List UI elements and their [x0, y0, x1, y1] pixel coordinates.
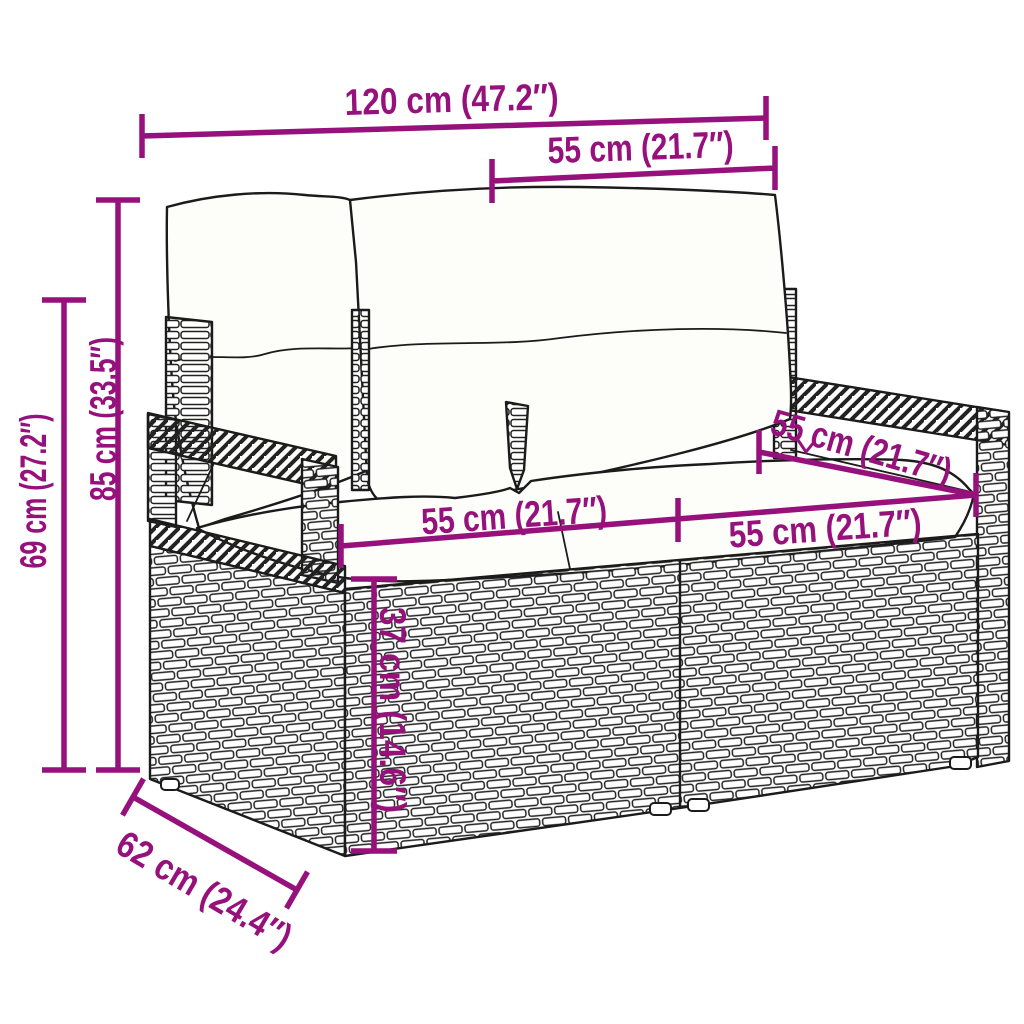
dimension-total-height: 85 cm (33.5″) — [83, 200, 140, 770]
right-armrest-post — [977, 407, 1009, 767]
dimension-total-width-label: 120 cm (47.2″) — [344, 76, 559, 123]
dimension-total-depth-label: 62 cm (24.4″) — [110, 823, 300, 958]
sofa-foot — [950, 757, 971, 769]
dimension-armrest-height: 69 cm (27.2″) — [13, 300, 86, 770]
sofa-foot — [688, 799, 709, 811]
dimension-diagram: 120 cm (47.2″) 55 cm (21.7″) 85 cm (33.5… — [0, 0, 1024, 1024]
dimension-back-cushion-width-label: 55 cm (21.7″) — [547, 124, 734, 171]
dimension-seat-height-label: 37 cm (14.6″) — [372, 607, 413, 813]
sofa-foot — [650, 803, 671, 815]
dimension-armrest-height-label: 69 cm (27.2″) — [13, 414, 54, 569]
sofa-dimension-illustration: 120 cm (47.2″) 55 cm (21.7″) 85 cm (33.5… — [0, 0, 1024, 1024]
sofa-foot — [161, 779, 179, 790]
back-cushion-right — [350, 187, 791, 507]
left-armrest-base-panel — [150, 546, 345, 856]
back-frame-middle-post — [352, 310, 369, 490]
dimension-total-height-label: 85 cm (33.5″) — [83, 337, 124, 501]
